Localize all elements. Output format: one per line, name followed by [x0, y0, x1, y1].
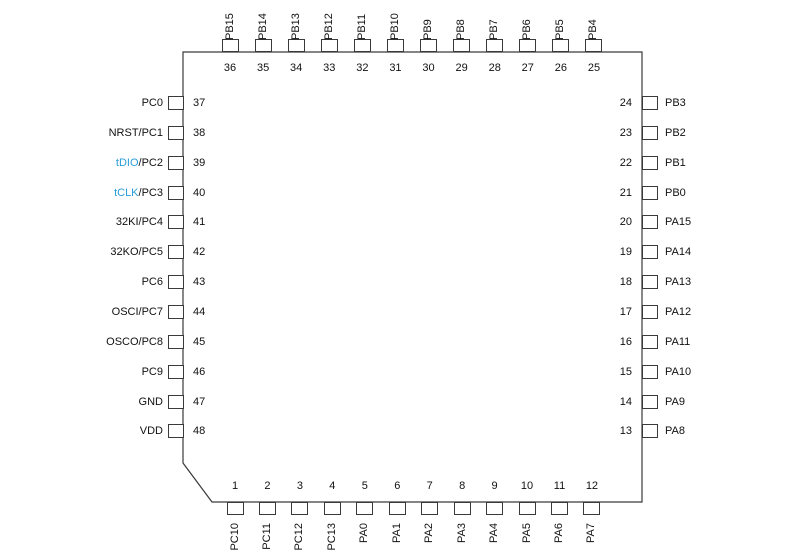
pin-42-number: 42 [193, 245, 233, 259]
pin-23-label: PB2 [665, 126, 775, 140]
pin-6-box [389, 502, 406, 515]
pin-label-text: PA6 [553, 523, 566, 543]
pin-label-text: PC0 [142, 97, 163, 109]
pin-number-text: 32 [356, 62, 368, 74]
pin-46-number: 46 [193, 365, 233, 379]
pin-21-label: PB0 [665, 186, 775, 200]
pin-12-box [583, 502, 600, 515]
pin-23-number: 23 [592, 126, 632, 140]
pin-3-box [291, 502, 308, 515]
pin-label-text: OSCI/PC7 [112, 306, 163, 318]
pin-48-label: VDD [40, 424, 163, 438]
pin-33-box [321, 39, 338, 52]
pin-number-text: 26 [555, 62, 567, 74]
pin-13-number: 13 [592, 424, 632, 438]
pin-number-text: 23 [620, 127, 632, 139]
pin-46-label: PC9 [40, 365, 163, 379]
pin-8-box [454, 502, 471, 515]
pin-48-number: 48 [193, 424, 233, 438]
pin-24-number: 24 [592, 96, 632, 110]
pin-label-text: PB2 [665, 127, 686, 139]
pin-48-box [168, 424, 184, 438]
pin-25-number: 25 [574, 61, 614, 75]
pin-label-text: PB7 [488, 19, 501, 40]
pin-number-text: 13 [620, 425, 632, 437]
pin-number-text: 31 [389, 62, 401, 74]
pin-32-box [354, 39, 371, 52]
pin-41-number: 41 [193, 215, 233, 229]
pin-43-box [168, 275, 184, 289]
pin-label-text: PC12 [293, 523, 306, 551]
pin-label-text: PB3 [665, 97, 686, 109]
pin-14-number: 14 [592, 395, 632, 409]
pin-5-box [356, 502, 373, 515]
pin-number-text: 9 [492, 480, 498, 492]
pin-label-alt-function-text: tCLK [114, 187, 138, 199]
pin-number-text: 30 [422, 62, 434, 74]
pin-label-text: PB10 [389, 13, 402, 40]
pin-number-text: 6 [394, 480, 400, 492]
pin-16-box [642, 335, 658, 349]
pin-number-text: 47 [193, 396, 205, 408]
pin-number-text: 37 [193, 97, 205, 109]
pin-number-text: 4 [329, 480, 335, 492]
pin-24-box [642, 96, 658, 110]
pin-40-number: 40 [193, 186, 233, 200]
pin-number-text: 39 [193, 157, 205, 169]
pin-label-text: PA14 [665, 246, 691, 258]
pin-label-text: PC13 [326, 523, 339, 551]
pin-label-text: PA13 [665, 276, 691, 288]
pin-label-text: PB4 [587, 19, 600, 40]
pin-number-text: 27 [522, 62, 534, 74]
pin-39-number: 39 [193, 156, 233, 170]
pin-18-box [642, 275, 658, 289]
pin-number-text: 44 [193, 306, 205, 318]
pin-number-text: 1 [232, 480, 238, 492]
pin-label-text: PA11 [665, 336, 690, 348]
pin-label-text: PA0 [358, 523, 371, 543]
pin-label-text: PA7 [585, 523, 598, 543]
pin-number-text: 22 [620, 157, 632, 169]
pin-38-number: 38 [193, 126, 233, 140]
pin-40-box [168, 186, 184, 200]
pin-45-box [168, 335, 184, 349]
pin-21-box [642, 186, 658, 200]
pin-7-box [421, 502, 438, 515]
pin-number-text: 3 [297, 480, 303, 492]
pin-number-text: 5 [362, 480, 368, 492]
pin-label-text: PC9 [142, 366, 163, 378]
pin-label-text: PA4 [488, 523, 501, 543]
pin-number-text: 17 [620, 306, 632, 318]
pin-18-number: 18 [592, 275, 632, 289]
pin-label-text: PB11 [356, 14, 369, 40]
pin-41-label: 32KI/PC4 [40, 215, 163, 229]
pin-number-text: 12 [586, 480, 598, 492]
pin-label-text: PB13 [290, 13, 303, 40]
pin-45-number: 45 [193, 335, 233, 349]
pin-39-box [168, 156, 184, 170]
pin-16-number: 16 [592, 335, 632, 349]
pin-26-box [552, 39, 569, 52]
pin-4-box [324, 502, 341, 515]
pin-23-box [642, 126, 658, 140]
pin-27-box [519, 39, 536, 52]
pin-label-text: NRST/PC1 [109, 127, 163, 139]
pin-number-text: 15 [620, 366, 632, 378]
pin-41-box [168, 215, 184, 229]
pin-number-text: 40 [193, 187, 205, 199]
pin-number-text: 46 [193, 366, 205, 378]
pin-31-box [387, 39, 404, 52]
pin-22-label: PB1 [665, 156, 775, 170]
pin-9-box [486, 502, 503, 515]
pin-number-text: 48 [193, 425, 205, 437]
pin-21-number: 21 [592, 186, 632, 200]
pin-43-number: 43 [193, 275, 233, 289]
pin-label-text: OSCO/PC8 [106, 336, 163, 348]
pin-46-box [168, 365, 184, 379]
pin-number-text: 33 [323, 62, 335, 74]
pin-29-box [453, 39, 470, 52]
pin-44-box [168, 305, 184, 319]
pin-19-label: PA14 [665, 245, 775, 259]
pin-20-number: 20 [592, 215, 632, 229]
pin-number-text: 24 [620, 97, 632, 109]
pin-number-text: 7 [427, 480, 433, 492]
pin-number-text: 28 [489, 62, 501, 74]
pin-number-text: 45 [193, 336, 205, 348]
pin-42-box [168, 245, 184, 259]
pin-number-text: 11 [554, 480, 565, 492]
pin-label-text: PB12 [323, 13, 336, 40]
pin-number-text: 16 [620, 336, 632, 348]
pin-label-text: 32KI/PC4 [116, 216, 163, 228]
pin-label-text: PA12 [665, 306, 691, 318]
pin-28-box [486, 39, 503, 52]
pin-37-number: 37 [193, 96, 233, 110]
pin-1-box [227, 502, 244, 515]
pin-22-box [642, 156, 658, 170]
pin-number-text: 14 [620, 396, 632, 408]
pin-number-text: 42 [193, 246, 205, 258]
pin-43-label: PC6 [40, 275, 163, 289]
pin-20-box [642, 215, 658, 229]
pin-16-label: PA11 [665, 335, 775, 349]
pin-17-box [642, 305, 658, 319]
pin-number-text: 41 [193, 216, 205, 228]
pin-22-number: 22 [592, 156, 632, 170]
pin-label-text: PB9 [422, 19, 435, 40]
pin-25-box [585, 39, 602, 52]
pin-number-text: 25 [588, 62, 600, 74]
pin-40-label: tCLK/PC3 [40, 186, 163, 200]
pin-number-text: 10 [521, 480, 533, 492]
pin-37-box [168, 96, 184, 110]
pin-label-text: PC10 [229, 523, 242, 551]
pin-label-text: PA2 [423, 523, 436, 543]
pin-number-text: 36 [224, 62, 236, 74]
pin-label-alt-function-text: tDIO [116, 157, 139, 169]
pin-label-text: PB6 [521, 19, 534, 40]
pin-44-number: 44 [193, 305, 233, 319]
pin-47-label: GND [40, 395, 163, 409]
pin-15-box [642, 365, 658, 379]
pin-14-label: PA9 [665, 395, 775, 409]
pin-13-label: PA8 [665, 424, 775, 438]
pin-number-text: 34 [290, 62, 302, 74]
pin-17-number: 17 [592, 305, 632, 319]
pin-number-text: 8 [459, 480, 465, 492]
pin-label-text: PA5 [521, 523, 534, 543]
pin-label-text: PC11 [261, 523, 274, 550]
pin-label-text: PA9 [665, 396, 685, 408]
pin-18-label: PA13 [665, 275, 775, 289]
pin-label-text: PB5 [554, 19, 567, 40]
pin-number-text: 35 [257, 62, 269, 74]
pin-label-text: PB15 [224, 13, 237, 40]
pin-45-label: OSCO/PC8 [40, 335, 163, 349]
pin-14-box [642, 395, 658, 409]
pin-19-box [642, 245, 658, 259]
pin-38-label: NRST/PC1 [40, 126, 163, 140]
chip-outline [183, 52, 642, 502]
pin-2-box [259, 502, 276, 515]
pin-47-box [168, 395, 184, 409]
pin-15-number: 15 [592, 365, 632, 379]
pin-35-box [255, 39, 272, 52]
pin-label-text: PA15 [665, 216, 691, 228]
pin-39-label: tDIO/PC2 [40, 156, 163, 170]
pin-30-box [420, 39, 437, 52]
pin-label-text: PA3 [456, 523, 469, 543]
pin-label-text: PB14 [257, 13, 270, 40]
pin-47-number: 47 [193, 395, 233, 409]
pin-42-label: 32KO/PC5 [40, 245, 163, 259]
pin-label-text: PA8 [665, 425, 685, 437]
pin-label-text: /PC2 [139, 157, 163, 169]
pin-label-text: VDD [140, 425, 163, 437]
pin-34-box [288, 39, 305, 52]
pin-36-box [222, 39, 239, 52]
pin-number-text: 38 [193, 127, 205, 139]
pin-number-text: 18 [620, 276, 632, 288]
pin-38-box [168, 126, 184, 140]
pin-13-box [642, 424, 658, 438]
pin-24-label: PB3 [665, 96, 775, 110]
pin-label-text: GND [139, 396, 163, 408]
pin-label-text: PC6 [142, 276, 163, 288]
pin-number-text: 29 [456, 62, 468, 74]
pin-12-number: 12 [572, 479, 612, 493]
pin-number-text: 20 [620, 216, 632, 228]
pin-label-text: PB0 [665, 187, 686, 199]
pin-10-box [519, 502, 536, 515]
pin-19-number: 19 [592, 245, 632, 259]
pin-label-text: /PC3 [139, 187, 163, 199]
pin-37-label: PC0 [40, 96, 163, 110]
pinout-diagram: 36PB1535PB1434PB1333PB1232PB1131PB1030PB… [0, 0, 798, 554]
pin-number-text: 21 [620, 187, 632, 199]
pin-44-label: OSCI/PC7 [40, 305, 163, 319]
pin-15-label: PA10 [665, 365, 775, 379]
pin-label-text: PB1 [665, 157, 686, 169]
pin-number-text: 43 [193, 276, 205, 288]
pin-label-text: PA10 [665, 366, 691, 378]
pin-label-text: 32KO/PC5 [110, 246, 163, 258]
pin-number-text: 2 [264, 480, 270, 492]
pin-17-label: PA12 [665, 305, 775, 319]
pin-label-text: PA1 [391, 523, 404, 543]
pin-11-box [551, 502, 568, 515]
pin-number-text: 19 [620, 246, 632, 258]
pin-label-text: PB8 [455, 19, 468, 40]
pin-20-label: PA15 [665, 215, 775, 229]
